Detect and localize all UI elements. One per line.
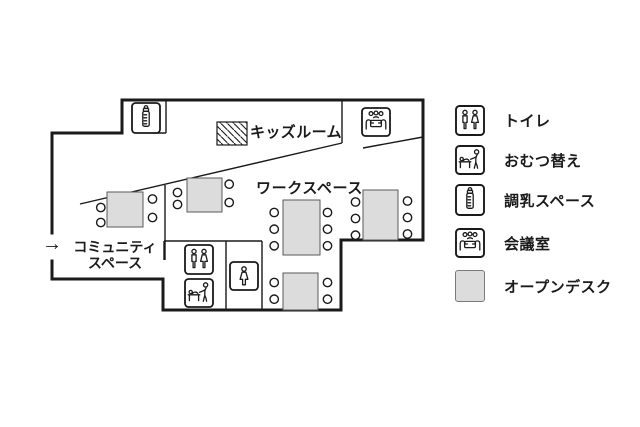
chair bbox=[351, 198, 359, 206]
chair bbox=[173, 188, 181, 196]
toilet-icon bbox=[455, 105, 485, 136]
chair bbox=[173, 200, 181, 208]
chair bbox=[403, 213, 411, 221]
chair bbox=[225, 180, 233, 188]
diaper-change-icon bbox=[455, 145, 485, 175]
legend-label: トイレ bbox=[504, 110, 551, 131]
chair bbox=[323, 225, 331, 233]
kids-room-hatch bbox=[217, 122, 247, 145]
community-space-label: コミュニティ スペース bbox=[62, 240, 168, 271]
baby-bottle-icon bbox=[455, 184, 485, 216]
legend-row-toilet: トイレ bbox=[455, 104, 551, 136]
chair bbox=[270, 295, 278, 303]
kids-room-label: キッズルーム bbox=[250, 121, 342, 142]
legend-label: 会議室 bbox=[504, 233, 551, 254]
meeting-room-icon bbox=[455, 228, 485, 258]
chair bbox=[323, 295, 331, 303]
chair bbox=[270, 225, 278, 233]
chair bbox=[403, 197, 411, 205]
community-label-line1: コミュニティ bbox=[73, 239, 156, 255]
chair bbox=[97, 203, 105, 211]
chair bbox=[270, 278, 278, 286]
legend-row-diaper: おむつ替え bbox=[455, 144, 582, 176]
workspace-label: ワークスペース bbox=[256, 177, 363, 198]
open-desk bbox=[107, 192, 143, 227]
open-desk-swatch bbox=[455, 270, 485, 302]
chair bbox=[148, 213, 156, 221]
chair bbox=[323, 242, 331, 250]
chair bbox=[225, 198, 233, 206]
chair bbox=[351, 214, 359, 222]
chair bbox=[323, 278, 331, 286]
legend-row-meeting: 会議室 bbox=[455, 227, 551, 259]
open-desk bbox=[283, 273, 318, 310]
chair bbox=[148, 195, 156, 203]
legend-label: 調乳スペース bbox=[504, 190, 595, 211]
single-toilet-icon bbox=[230, 262, 258, 290]
toilet-icon bbox=[185, 245, 213, 274]
legend-row-bottle: 調乳スペース bbox=[455, 184, 595, 216]
open-desk bbox=[363, 190, 398, 240]
entrance-arrow: → bbox=[42, 233, 62, 256]
meeting-room-wall bbox=[363, 137, 423, 148]
chair bbox=[351, 231, 359, 239]
open-desk bbox=[187, 178, 222, 212]
legend-label: おむつ替え bbox=[504, 150, 582, 171]
chair bbox=[270, 208, 278, 216]
diaper-change-icon bbox=[185, 279, 213, 307]
baby-bottle-icon bbox=[132, 103, 160, 133]
open-desk bbox=[283, 200, 320, 255]
floor-plan-page: → キッズルーム ワークスペース コミュニティ スペース トイレ おむつ替え bbox=[0, 0, 640, 427]
chair bbox=[97, 218, 105, 226]
meeting-room-icon bbox=[362, 108, 390, 136]
chair bbox=[403, 230, 411, 238]
community-label-line2: スペース bbox=[88, 255, 142, 271]
chair bbox=[323, 208, 331, 216]
legend-row-open-desk: オープンデスク bbox=[455, 270, 612, 302]
chair bbox=[270, 242, 278, 250]
legend-label: オープンデスク bbox=[504, 276, 612, 297]
